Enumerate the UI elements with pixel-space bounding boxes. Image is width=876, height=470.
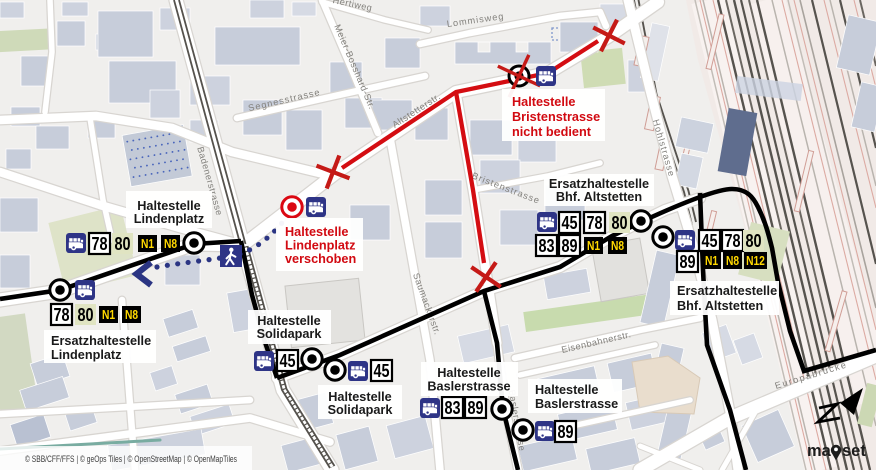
svg-text:N1: N1 bbox=[102, 309, 116, 322]
svg-text:Ersatzhaltestelle: Ersatzhaltestelle bbox=[549, 177, 649, 191]
svg-text:N8: N8 bbox=[611, 240, 624, 253]
svg-text:89: 89 bbox=[680, 251, 696, 272]
svg-text:Haltestelle: Haltestelle bbox=[535, 383, 598, 397]
svg-text:Baslerstrasse: Baslerstrasse bbox=[535, 397, 618, 411]
svg-text:80: 80 bbox=[78, 304, 94, 325]
svg-text:Lindenplatz: Lindenplatz bbox=[134, 212, 204, 226]
svg-text:Haltestelle: Haltestelle bbox=[512, 95, 575, 109]
svg-text:45: 45 bbox=[702, 230, 718, 251]
svg-text:Bhf. Altstetten: Bhf. Altstetten bbox=[556, 190, 642, 204]
svg-text:Solidapark: Solidapark bbox=[328, 403, 394, 417]
svg-text:89: 89 bbox=[558, 421, 574, 442]
svg-text:Haltestelle: Haltestelle bbox=[257, 314, 320, 328]
svg-text:Solidapark: Solidapark bbox=[257, 327, 323, 341]
svg-text:© SBB/CFF/FFS | © geOps Tiles: © SBB/CFF/FFS | © geOps Tiles | © OpenSt… bbox=[25, 454, 237, 465]
svg-text:83: 83 bbox=[539, 235, 555, 256]
svg-text:Bhf. Altstetten: Bhf. Altstetten bbox=[677, 299, 763, 313]
svg-text:N8: N8 bbox=[164, 238, 177, 251]
svg-text:78: 78 bbox=[725, 230, 741, 251]
svg-text:Haltestelle: Haltestelle bbox=[285, 225, 348, 239]
svg-text:Haltestelle: Haltestelle bbox=[137, 199, 200, 213]
svg-text:83: 83 bbox=[445, 397, 461, 418]
svg-text:N1: N1 bbox=[705, 255, 719, 268]
svg-text:Haltestelle: Haltestelle bbox=[437, 366, 500, 380]
svg-text:N1: N1 bbox=[587, 240, 601, 253]
svg-text:ma: ma bbox=[807, 442, 832, 460]
svg-text:N8: N8 bbox=[125, 309, 138, 322]
svg-text:78: 78 bbox=[54, 304, 70, 325]
svg-text:N12: N12 bbox=[746, 255, 765, 268]
svg-text:verschoben: verschoben bbox=[285, 252, 356, 266]
svg-text:N1: N1 bbox=[141, 238, 155, 251]
svg-text:set: set bbox=[842, 442, 866, 460]
svg-text:78: 78 bbox=[92, 233, 108, 254]
svg-text:45: 45 bbox=[280, 350, 296, 371]
svg-text:80: 80 bbox=[746, 230, 762, 251]
svg-text:80: 80 bbox=[115, 233, 131, 254]
svg-text:78: 78 bbox=[587, 212, 603, 233]
svg-text:Bristenstrasse: Bristenstrasse bbox=[512, 110, 600, 124]
svg-text:80: 80 bbox=[612, 212, 628, 233]
svg-text:Lindenplatz: Lindenplatz bbox=[51, 348, 121, 362]
svg-text:nicht bedient: nicht bedient bbox=[512, 125, 592, 139]
svg-text:45: 45 bbox=[562, 212, 578, 233]
svg-text:89: 89 bbox=[468, 397, 484, 418]
svg-text:45: 45 bbox=[374, 360, 390, 381]
svg-text:Haltestelle: Haltestelle bbox=[328, 390, 391, 404]
svg-text:Lindenplatz: Lindenplatz bbox=[285, 239, 355, 253]
svg-text:Baslerstrasse: Baslerstrasse bbox=[427, 380, 510, 394]
svg-text:Ersatzhaltestelle: Ersatzhaltestelle bbox=[677, 284, 777, 298]
svg-text:Ersatzhaltestelle: Ersatzhaltestelle bbox=[51, 334, 151, 348]
svg-text:N8: N8 bbox=[726, 255, 739, 268]
svg-text:89: 89 bbox=[562, 235, 578, 256]
